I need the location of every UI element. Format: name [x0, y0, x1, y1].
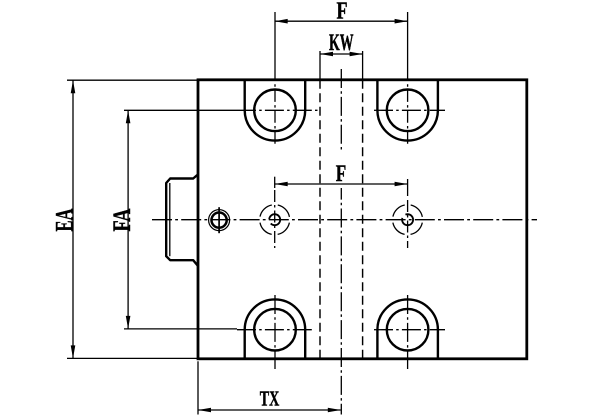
svg-text:FA: FA [109, 209, 136, 232]
svg-text:TX: TX [260, 387, 280, 411]
svg-text:F: F [337, 0, 348, 25]
svg-text:EA: EA [52, 209, 79, 232]
svg-text:KW: KW [329, 30, 354, 55]
svg-text:F: F [336, 161, 347, 186]
